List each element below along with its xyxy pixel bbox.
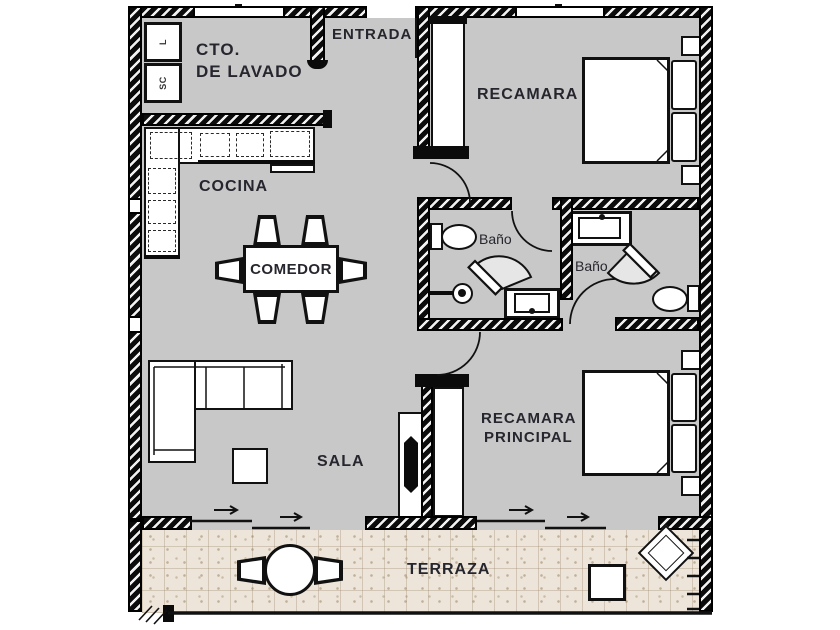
room-label-terrace: TERRAZA	[407, 561, 490, 579]
bed-pillow	[671, 112, 697, 162]
kitchen-counter-lip	[270, 164, 315, 173]
window-top-right	[517, 6, 603, 18]
wall-left-terrace	[128, 520, 142, 612]
room-label-master-2: PRINCIPAL	[484, 429, 573, 446]
sofa-section-vertical	[148, 360, 196, 463]
wall-bath2-bottom	[615, 317, 699, 331]
wall-left-1	[128, 6, 142, 200]
wall-top-4	[603, 6, 713, 18]
wall-bath1-left	[417, 197, 430, 331]
nightstand	[681, 350, 701, 370]
counter-edge	[144, 255, 180, 259]
vanity-drain	[599, 214, 605, 220]
room-label-dining: COMEDOR	[246, 248, 336, 290]
window-left-2	[128, 318, 142, 331]
terrace-edge-cap	[163, 605, 174, 622]
nightstand	[681, 165, 701, 185]
sink-stem	[430, 291, 454, 295]
tv-icon	[404, 436, 418, 493]
wall-tv-partition	[421, 377, 433, 518]
room-label-kitchen: COCINA	[199, 178, 268, 196]
vanity-drain	[529, 308, 535, 314]
closet-cap	[429, 16, 467, 24]
terrace-chair	[237, 556, 266, 585]
wall-cap	[323, 110, 332, 128]
closet-master	[433, 387, 464, 517]
floor-strip-master-door	[477, 516, 658, 530]
terrace-chair	[314, 556, 343, 585]
wall-cap	[413, 146, 469, 159]
sink-drain	[458, 289, 466, 297]
terrace-planter	[588, 564, 626, 601]
floor-plan: L SC COMEDOR	[0, 0, 840, 630]
dryer: SC	[144, 63, 182, 103]
wall-laundry-bottom	[142, 113, 327, 126]
toilet-bowl	[441, 224, 477, 250]
nightstand	[681, 476, 701, 496]
room-label-living: SALA	[317, 453, 365, 471]
bed-pillow	[671, 424, 697, 473]
bed-mattress	[582, 370, 670, 476]
floor-strip-living-door	[192, 516, 367, 530]
room-label-entry: ENTRADA	[332, 26, 412, 43]
closet-bedroom	[431, 20, 465, 149]
dryer-label: SC	[146, 67, 180, 99]
wall-left-3	[128, 331, 142, 520]
wall-bath2-left	[560, 197, 573, 300]
wall-top-2	[283, 6, 367, 18]
bed-pillow	[671, 373, 697, 422]
wall-bottom-2	[365, 516, 477, 530]
room-label-master-1: RECAMARA	[481, 410, 577, 427]
dining-table: COMEDOR	[243, 245, 339, 293]
washer: L	[144, 22, 182, 62]
room-label-laundry-2: DE LAVADO	[196, 62, 303, 82]
room-label-laundry-1: CTO.	[196, 40, 240, 60]
counter-edge	[198, 160, 315, 164]
coffee-table	[232, 448, 268, 484]
vanity-sink	[578, 217, 621, 239]
wall-bath1-bottom	[417, 318, 563, 331]
nightstand	[681, 36, 701, 56]
room-label-bath1: Baño	[479, 231, 512, 247]
bed-pillow	[671, 60, 697, 110]
wall-bottom-1	[142, 516, 192, 530]
wall-bath2-top	[560, 197, 699, 210]
terrace-table	[264, 544, 316, 596]
wall-cap	[415, 374, 469, 387]
room-label-bedroom: RECAMARA	[477, 86, 578, 104]
bed-mattress	[582, 57, 670, 164]
window-top-left	[195, 6, 283, 18]
wall-bath1-top	[417, 197, 512, 210]
toilet-bowl	[652, 286, 688, 312]
terrace-corner-chair-inner	[648, 535, 685, 572]
wall-left-2	[128, 212, 142, 318]
window-left-1	[128, 200, 142, 212]
room-label-bath2: Baño	[575, 258, 608, 274]
wall-entry-stub	[310, 6, 325, 64]
washer-label: L	[146, 26, 180, 58]
wall-bedroom-divider	[417, 6, 430, 149]
